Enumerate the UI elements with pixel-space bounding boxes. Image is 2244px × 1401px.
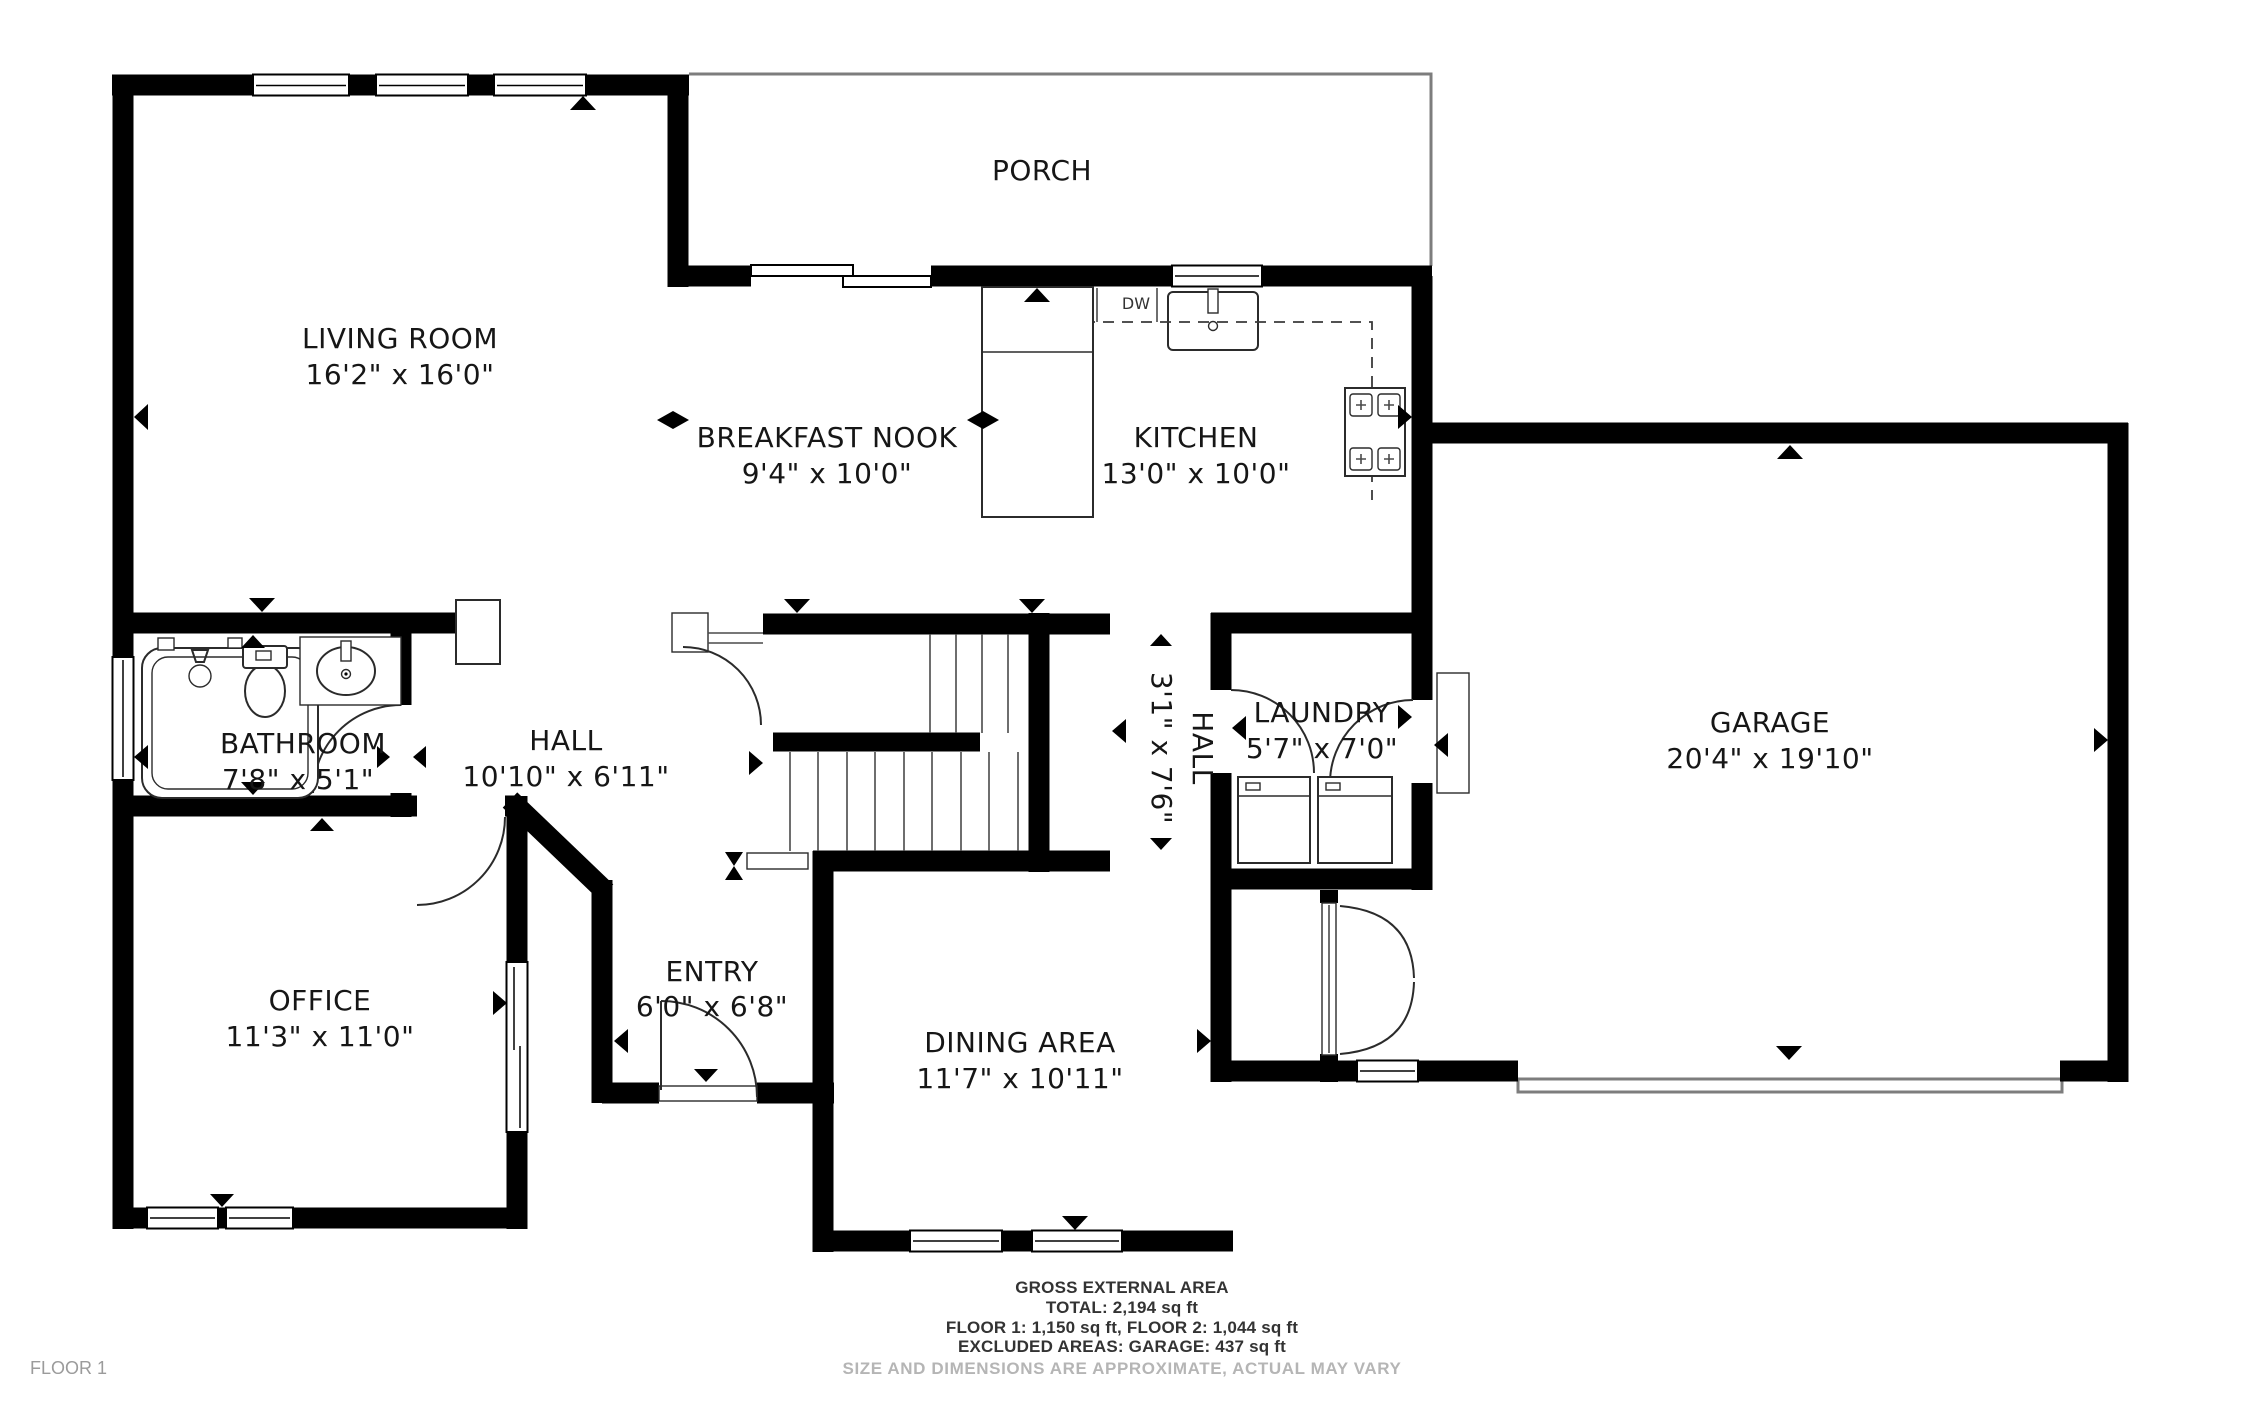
room-label-kitchen: KITCHEN xyxy=(1134,421,1259,454)
living-room-window-3 xyxy=(494,75,586,96)
room-dims-breakfast-nook: 9'4" x 10'0" xyxy=(742,457,913,490)
dining-window-1 xyxy=(910,1231,1002,1252)
office-door-arc xyxy=(417,817,505,905)
porch-sliding-door xyxy=(751,265,931,287)
office-side-window xyxy=(507,962,528,1132)
room-label-bathroom: BATHROOM xyxy=(220,727,386,760)
room-label-laundry: LAUNDRY xyxy=(1254,696,1391,729)
mudroom-double-doors xyxy=(1322,903,1414,1055)
bathroom-window xyxy=(113,657,134,780)
dryer-icon xyxy=(1318,777,1392,863)
room-label-living-room: LIVING ROOM xyxy=(302,322,498,355)
mudroom-window xyxy=(1357,1061,1418,1082)
office-bottom-window-1 xyxy=(147,1208,218,1229)
hall-closet-sill xyxy=(747,853,808,869)
closet-jamb-top xyxy=(1320,890,1338,903)
living-room-window-2 xyxy=(376,75,468,96)
footer-total: TOTAL: 2,194 sq ft xyxy=(1046,1298,1198,1317)
footer-floors: FLOOR 1: 1,150 sq ft, FLOOR 2: 1,044 sq … xyxy=(946,1318,1298,1337)
room-label-entry: ENTRY xyxy=(665,955,758,988)
room-dims-dining-area: 11'7" x 10'11" xyxy=(916,1062,1123,1095)
room-dims-hall-upper: 3'1" x 7'6" xyxy=(1145,672,1178,824)
floor-label: FLOOR 1 xyxy=(30,1358,107,1378)
kitchen-peninsula xyxy=(982,287,1093,517)
stove-icon xyxy=(1345,388,1405,476)
room-label-porch: PORCH xyxy=(992,154,1092,187)
room-label-garage: GARAGE xyxy=(1710,706,1830,739)
chimney-pillar xyxy=(456,600,500,664)
footer-excluded: EXCLUDED AREAS: GARAGE: 437 sq ft xyxy=(958,1337,1286,1356)
living-room-window-1 xyxy=(253,75,349,96)
room-label-hall: HALL xyxy=(529,724,602,757)
stair-closet xyxy=(672,613,763,725)
bathroom-sink-icon xyxy=(300,637,401,705)
room-dims-garage: 20'4" x 19'10" xyxy=(1666,742,1873,775)
dishwasher-label: DW xyxy=(1122,294,1150,313)
footer: GROSS EXTERNAL AREA TOTAL: 2,194 sq ft F… xyxy=(843,1278,1402,1378)
washer-icon xyxy=(1238,777,1310,863)
footer-heading: GROSS EXTERNAL AREA xyxy=(1015,1278,1229,1297)
stair-treads-lower xyxy=(790,752,1018,851)
room-dims-entry: 6'0" x 6'8" xyxy=(636,990,788,1023)
room-label-office: OFFICE xyxy=(269,984,372,1017)
utility-cabinet xyxy=(1437,673,1469,793)
kitchen-sink-icon xyxy=(1168,289,1258,350)
room-label-breakfast-nook: BREAKFAST NOOK xyxy=(697,421,958,454)
closet-jamb-bottom xyxy=(1320,1054,1338,1082)
office-bottom-window-2 xyxy=(226,1208,293,1229)
floor-plan-canvas: DW xyxy=(0,0,2244,1401)
kitchen-sink-window xyxy=(1172,266,1262,287)
room-dims-hall: 10'10" x 6'11" xyxy=(462,760,669,793)
toilet-icon xyxy=(243,646,287,717)
room-dims-kitchen: 13'0" x 10'0" xyxy=(1102,457,1291,490)
stair-treads-upper xyxy=(930,634,1008,733)
room-dims-bathroom: 7'8" x 5'1" xyxy=(222,763,374,796)
room-dims-office: 11'3" x 11'0" xyxy=(226,1020,415,1053)
garage-door xyxy=(1518,1079,2062,1092)
room-label-hall-upper: HALL xyxy=(1186,711,1219,784)
footer-disclaimer: SIZE AND DIMENSIONS ARE APPROXIMATE, ACT… xyxy=(843,1359,1402,1378)
dining-window-2 xyxy=(1032,1231,1122,1252)
room-dims-living-room: 16'2" x 16'0" xyxy=(306,358,495,391)
room-label-dining-area: DINING AREA xyxy=(924,1026,1116,1059)
room-dims-laundry: 5'7" x 7'0" xyxy=(1246,732,1398,765)
